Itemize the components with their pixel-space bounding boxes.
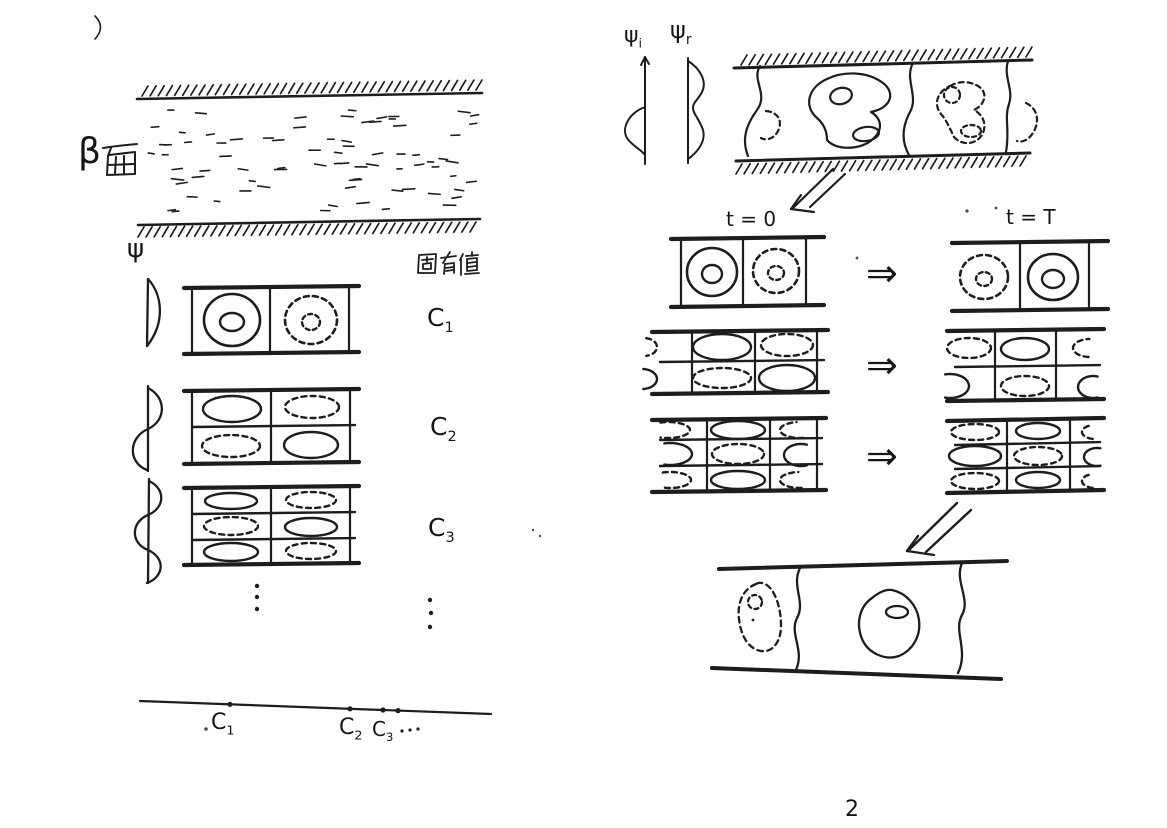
wall-hatching bbox=[138, 47, 1032, 237]
mode-box-c3 bbox=[184, 486, 359, 565]
vertical-ellipsis-dots bbox=[255, 584, 433, 629]
notebook-page: β面 ψ 固有値 C1 C2 C3 C1 C2 C3 ψi ψr t = 0 t… bbox=[0, 0, 1167, 828]
down-left-arrow-bottom bbox=[907, 503, 971, 555]
eigenvalue-c2-label: C2 bbox=[430, 414, 457, 445]
time-T-label: t = T bbox=[1006, 207, 1056, 227]
beta-channel bbox=[137, 93, 482, 225]
binding-marks bbox=[95, 16, 101, 39]
evolution-box-t0-row2 bbox=[643, 330, 828, 394]
evolution-box-tT-row3 bbox=[947, 418, 1104, 493]
implies-arrow-row3: ⇒ bbox=[866, 437, 898, 475]
evolution-box-tT-row2 bbox=[945, 329, 1104, 401]
mode-box-c1 bbox=[184, 286, 359, 354]
evolution-box-t0-row1 bbox=[671, 237, 824, 307]
beta-plane-label: β面 bbox=[78, 134, 137, 170]
psi-imag-profile bbox=[625, 57, 649, 164]
superposition-contours bbox=[739, 563, 965, 673]
psi-mode1-curve bbox=[147, 279, 160, 346]
psi-mode2-curve bbox=[133, 386, 162, 471]
psi-axis-label: ψ bbox=[127, 236, 144, 262]
eigenvalue-number-line bbox=[140, 701, 491, 714]
psi-real-profile bbox=[688, 58, 704, 163]
psi-mode3-curve bbox=[135, 479, 161, 583]
eigenvalue-header-kanji-art bbox=[418, 252, 479, 275]
wave-contours bbox=[745, 61, 1037, 156]
psi-imag-label: ψi bbox=[624, 25, 642, 51]
implies-arrow-row2: ⇒ bbox=[866, 346, 898, 384]
superposition-channel bbox=[712, 561, 1007, 679]
axis-c3-label: C3 bbox=[372, 719, 393, 744]
diagram-canvas bbox=[0, 0, 1167, 828]
page-number: 2 bbox=[845, 799, 859, 821]
mode-box-c2 bbox=[184, 389, 359, 464]
evolution-box-t0-row3 bbox=[652, 418, 826, 492]
psi-real-label: ψr bbox=[670, 18, 692, 48]
axis-c2-label: C2 bbox=[339, 717, 363, 743]
wave-channel-top bbox=[734, 60, 1037, 161]
down-left-arrow-top bbox=[791, 169, 845, 212]
evolution-box-tT-row1 bbox=[952, 241, 1108, 311]
implies-arrow-row1: ⇒ bbox=[866, 254, 898, 292]
axis-c1-label: C1 bbox=[211, 712, 235, 738]
eigenvalue-c1-label: C1 bbox=[427, 305, 454, 336]
eigenvalue-c3-label: C3 bbox=[428, 515, 455, 546]
beta-plane-dash-field bbox=[148, 110, 478, 212]
time-zero-label: t = 0 bbox=[726, 209, 776, 229]
